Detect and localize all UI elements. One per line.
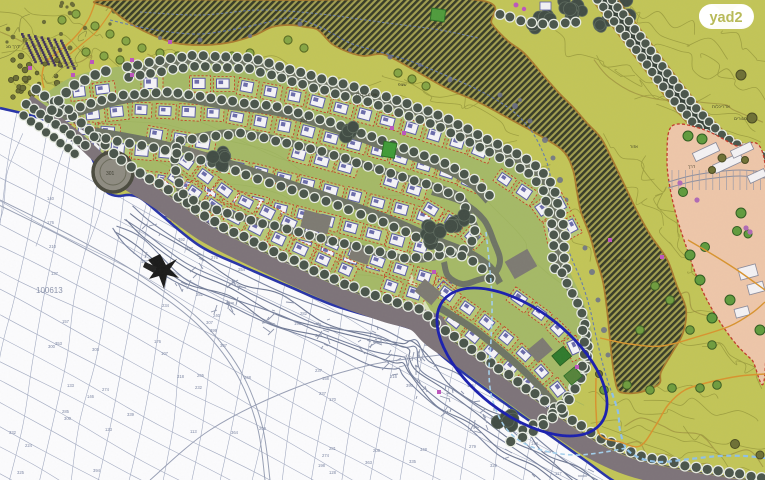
svg-text:yad2: yad2: [709, 10, 742, 26]
